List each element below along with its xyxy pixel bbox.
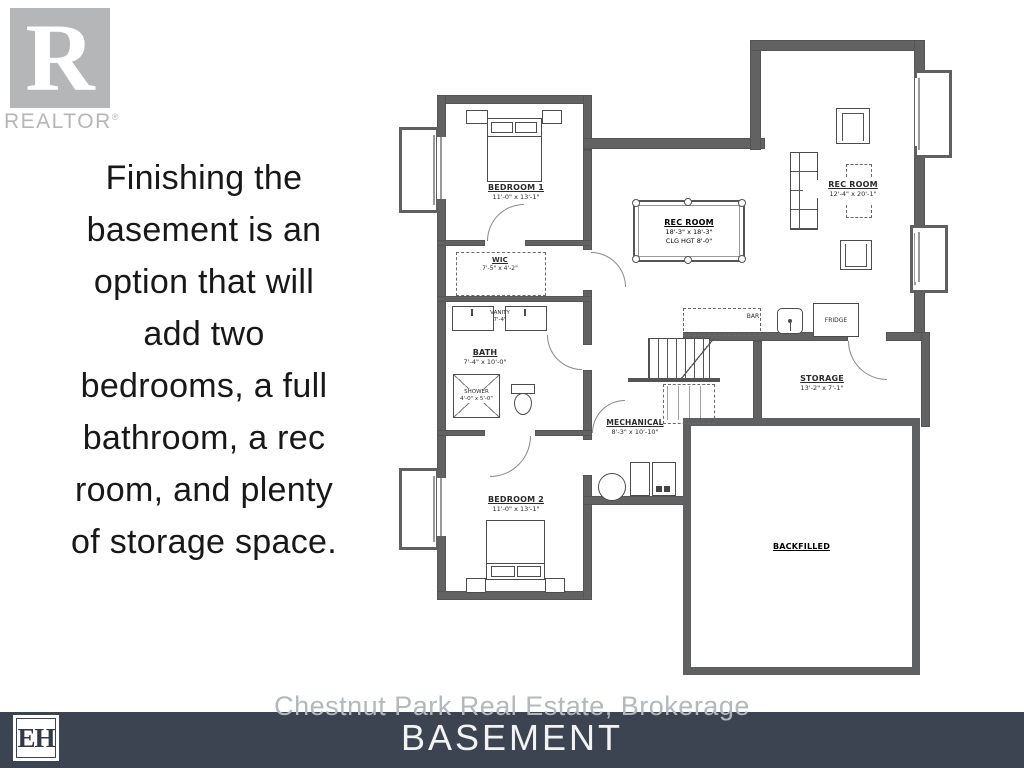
bar-sink [777,308,803,334]
mechanical-unit [652,462,676,496]
wall-segment [750,40,761,150]
wall-segment [750,40,925,51]
description-line: basement is an [28,204,380,256]
room-label-wic: WIC 7'-5" x 4'-2" [456,256,544,272]
door-arc [487,204,524,241]
window-icon [433,135,435,205]
description-text: Finishing the basement is an option that… [28,152,380,568]
window-bump [399,127,439,213]
plan-title: BASEMENT [0,717,1024,759]
nightstand [545,578,565,593]
fridge-label: FRIDGE [825,317,847,324]
room-label-recroom-main: REC ROOM 12'-4" x 20'-1" [803,180,903,198]
window-bump [399,468,439,550]
window-icon [437,137,446,199]
description-line: Finishing the [28,152,380,204]
window-icon [915,78,924,146]
realtor-logo: R [10,8,110,108]
post-marker [846,164,872,177]
wall-segment [583,138,765,149]
room-label-bedroom1: BEDROOM 1 11'-0" x 13'-1" [466,183,566,201]
mechanical-unit [630,462,650,496]
realtor-logo-text: REALTOR® [4,110,124,134]
wall-segment [753,341,762,427]
bed [486,520,545,580]
room-label-mechanical: MECHANICAL 8'-3" x 10'-10" [585,418,685,436]
door-arc [547,335,582,370]
wall-segment [921,332,930,427]
registered-mark-icon: ® [112,112,120,122]
room-backfilled: BACKFILLED [683,418,920,675]
room-label-recroom-pool: REC ROOM [664,218,714,227]
pillow [515,122,537,133]
description-line: add two [28,308,380,360]
wall-segment [525,240,592,246]
nightstand [542,110,562,124]
wall-segment [437,591,592,600]
wall-segment [583,496,690,505]
vanity-sink [505,306,547,331]
wall-segment [437,430,485,436]
armchair [836,108,870,144]
description-line: bathroom, a rec [28,412,380,464]
wall-segment [437,296,592,302]
window-icon [437,478,446,536]
description-line: of storage space. [28,516,380,568]
wall-segment [437,95,592,104]
floorplan: BACKFILLED BEDROOM 1 11'-0" x 13'-1" WIC… [395,25,970,685]
room-label-storage: STORAGE 13'-2" x 7'-1" [772,374,872,392]
nightstand [466,110,488,124]
room-label-backfilled: BACKFILLED [773,542,830,551]
wall-segment [583,150,592,250]
vanity-label: VANITY 7'-4" [490,310,510,323]
description-line: room, and plenty [28,464,380,516]
room-label-bath: BATH 7'-4" x 10'-0" [435,348,535,366]
eh-logo: EH [13,715,59,761]
pillow [517,566,541,577]
room-label-bedroom2: BEDROOM 2 11'-0" x 13'-1" [466,495,566,513]
shower-label: SHOWER 4'-0" x 5'-0" [459,389,494,402]
stairs-break-line [680,338,714,380]
pillow [491,122,513,133]
realtor-logo-letter: R [25,10,94,106]
wall-segment [437,240,485,246]
wall-segment [535,430,592,436]
post-marker [846,205,872,218]
door-arc [591,252,626,287]
armchair [840,240,872,270]
shower: SHOWER 4'-0" x 5'-0" [453,374,500,418]
pool-table: REC ROOM 18'-3" x 18'-3" CLG HGT 8'-0" [633,200,745,262]
bed [487,118,542,182]
description-line: bedrooms, a full [28,360,380,412]
stairs-lower-treads [667,386,709,420]
fridge: FRIDGE [813,303,859,337]
window-icon [433,476,435,542]
door-arc [490,436,531,477]
description-line: option that will [28,256,380,308]
wall-segment [583,475,592,600]
toilet [514,393,532,415]
nightstand [466,578,486,593]
pillow [491,566,515,577]
window-icon [915,232,924,282]
water-heater [598,473,626,501]
stair-rail [628,378,720,382]
vanity-sink [452,306,494,331]
bar-label: BAR [739,313,767,320]
